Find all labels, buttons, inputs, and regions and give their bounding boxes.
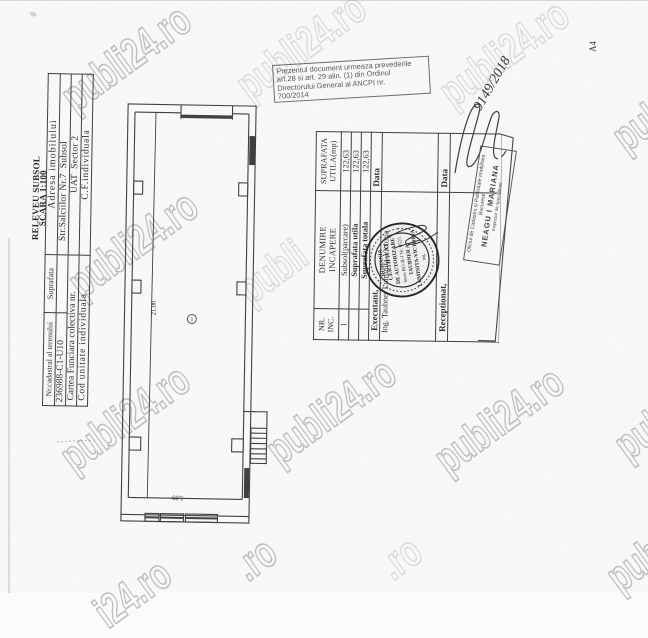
svg-text:ing.: ing. bbox=[420, 253, 426, 261]
svg-text:21.00: 21.00 bbox=[150, 301, 157, 316]
svg-text:1: 1 bbox=[190, 317, 193, 324]
svg-text:5.89: 5.89 bbox=[172, 494, 183, 501]
